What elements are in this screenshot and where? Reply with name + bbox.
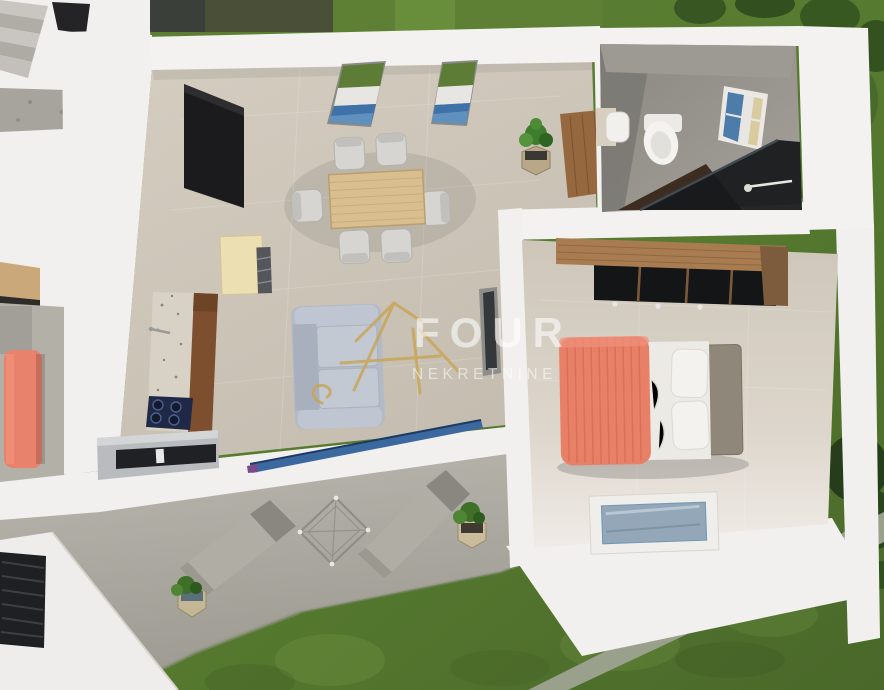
watermark-subtitle-text: NEKRETNINE: [412, 366, 557, 383]
bathroom-top-wall: [596, 26, 801, 46]
skylight-window: [589, 492, 719, 554]
sofa: [291, 303, 385, 429]
watermark-brand-text: FOUR: [414, 309, 573, 356]
left-room-bed: [4, 350, 45, 468]
cooktop: [146, 396, 193, 430]
bathroom-right-wall: [798, 26, 874, 230]
bed-pillow: [671, 400, 709, 450]
dining-table: [329, 170, 426, 229]
bed-pillow: [671, 349, 709, 398]
dining-chair: [376, 133, 408, 167]
louvre-shutter: [0, 552, 46, 648]
dining-chair: [339, 230, 371, 265]
bedroom: [498, 202, 880, 656]
bathroom: [594, 26, 874, 234]
bed-headboard: [705, 344, 743, 455]
dining-chair: [334, 137, 366, 171]
bathroom-window: [718, 86, 768, 150]
dining-chair: [381, 228, 413, 263]
washbasin: [596, 108, 629, 146]
floorplan-svg: FOUR NEKRETNINE: [0, 0, 884, 690]
dining-chair: [291, 189, 323, 223]
apartment-3d-render: FOUR NEKRETNINE: [0, 0, 884, 690]
double-bed: [555, 334, 749, 480]
top-garden-strip: [150, 0, 603, 32]
left-room-wardrobe-top: [0, 262, 40, 300]
